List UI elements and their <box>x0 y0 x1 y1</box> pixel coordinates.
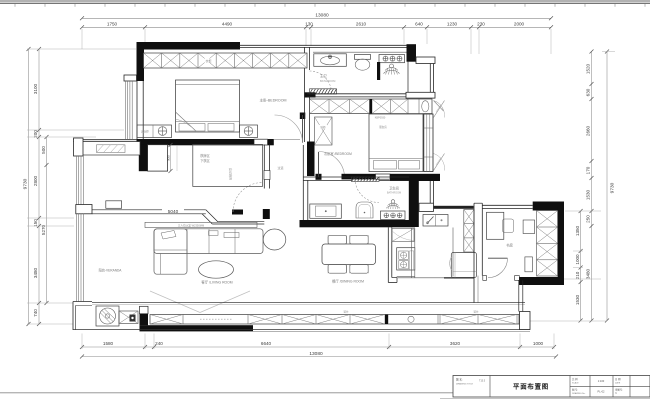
svg-text:250: 250 <box>586 215 591 223</box>
svg-text:餐厅 /DINING ROOM: 餐厅 /DINING ROOM <box>332 279 364 284</box>
svg-text:鞋柜: 鞋柜 <box>320 125 326 129</box>
svg-text:3480: 3480 <box>586 268 591 279</box>
svg-text:窗台: 窗台 <box>473 310 479 314</box>
svg-text:4490: 4490 <box>222 22 233 27</box>
svg-text:书房: 书房 <box>506 243 513 248</box>
svg-text:比 例:: 比 例: <box>572 377 578 381</box>
svg-text:KBP0930: KBP0930 <box>375 117 386 120</box>
svg-text:9730: 9730 <box>23 178 29 189</box>
svg-text:过道: 过道 <box>277 165 283 170</box>
svg-text:窗台: 窗台 <box>343 310 349 314</box>
svg-text:T15.5: T15.5 <box>479 380 486 383</box>
svg-text:6640: 6640 <box>261 341 272 346</box>
svg-text:卫生间: 卫生间 <box>389 186 399 191</box>
svg-text:230: 230 <box>477 22 485 27</box>
svg-text:BATHROOM: BATHROOM <box>387 192 401 195</box>
svg-text:下棋区: 下棋区 <box>200 158 210 163</box>
svg-text:630: 630 <box>586 88 591 96</box>
svg-text:3100: 3100 <box>33 83 38 94</box>
svg-text:9730: 9730 <box>610 182 616 193</box>
svg-text:SCALE: SCALE <box>572 382 579 385</box>
svg-text:1530: 1530 <box>586 189 591 200</box>
svg-text:2800: 2800 <box>33 175 38 186</box>
svg-text:5040: 5040 <box>168 209 179 214</box>
svg-text:DRAWING No.: DRAWING No. <box>572 392 586 395</box>
svg-text:170: 170 <box>586 166 591 174</box>
svg-text:无: 无 <box>615 392 617 395</box>
svg-text:DATE: DATE <box>615 382 621 385</box>
svg-text:200: 200 <box>33 130 38 138</box>
svg-text:平面布置图: 平面布置图 <box>513 382 549 391</box>
svg-text:1000: 1000 <box>533 341 544 346</box>
svg-text:13080: 13080 <box>315 13 329 19</box>
svg-text:三人位沙发 W2350MM: 三人位沙发 W2350MM <box>178 224 204 228</box>
svg-text:主卧-BEDROOM: 主卧-BEDROOM <box>260 98 287 103</box>
svg-text:240: 240 <box>155 341 163 346</box>
svg-text:950: 950 <box>166 155 170 161</box>
svg-text:3620: 3620 <box>450 341 461 346</box>
svg-text:640: 640 <box>415 22 423 27</box>
svg-text:1750: 1750 <box>107 22 118 27</box>
svg-text:PL-02: PL-02 <box>598 390 605 394</box>
svg-text:日 期:: 日 期: <box>615 377 621 381</box>
svg-text:2610: 2610 <box>356 22 367 27</box>
svg-text:1230: 1230 <box>447 22 458 27</box>
svg-text:客厅 /LIVING ROOM: 客厅 /LIVING ROOM <box>201 280 232 285</box>
svg-text:1:100: 1:100 <box>598 379 605 383</box>
svg-text:DRAWING TITLE: DRAWING TITLE <box>456 383 474 386</box>
svg-text:审图号:: 审图号: <box>615 388 623 392</box>
svg-text:3480: 3480 <box>33 267 38 278</box>
svg-text:210: 210 <box>575 271 580 279</box>
svg-text:主卫: 主卫 <box>320 73 327 78</box>
svg-text:1520: 1520 <box>586 63 591 74</box>
svg-text:图 名:: 图 名: <box>456 378 463 382</box>
svg-text:1580: 1580 <box>103 341 114 346</box>
svg-text:朋友房: 朋友房 <box>379 125 387 129</box>
svg-text:次卧室 /BEDROOM: 次卧室 /BEDROOM <box>324 151 352 156</box>
svg-text:2660: 2660 <box>586 125 591 136</box>
svg-text:阳台-VERANDA: 阳台-VERANDA <box>99 268 123 273</box>
svg-text:150: 150 <box>33 219 38 227</box>
svg-text:1350: 1350 <box>575 225 580 236</box>
svg-text:BATHROOM: BATHROOM <box>320 79 336 83</box>
svg-text:自动麻将: 自动麻将 <box>229 168 234 180</box>
svg-text:衣柜: 衣柜 <box>205 58 211 63</box>
svg-text:13080: 13080 <box>309 351 323 357</box>
svg-text:740: 740 <box>33 309 38 317</box>
svg-text:2000: 2000 <box>514 22 525 27</box>
svg-text:1000: 1000 <box>575 254 580 265</box>
svg-text:130: 130 <box>305 22 313 27</box>
svg-text:床头柜: 床头柜 <box>141 130 149 134</box>
svg-text:图 号:: 图 号: <box>572 388 578 392</box>
svg-text:棋牌区: 棋牌区 <box>200 153 210 158</box>
svg-text:500: 500 <box>41 146 46 154</box>
svg-text:1530: 1530 <box>575 294 580 305</box>
